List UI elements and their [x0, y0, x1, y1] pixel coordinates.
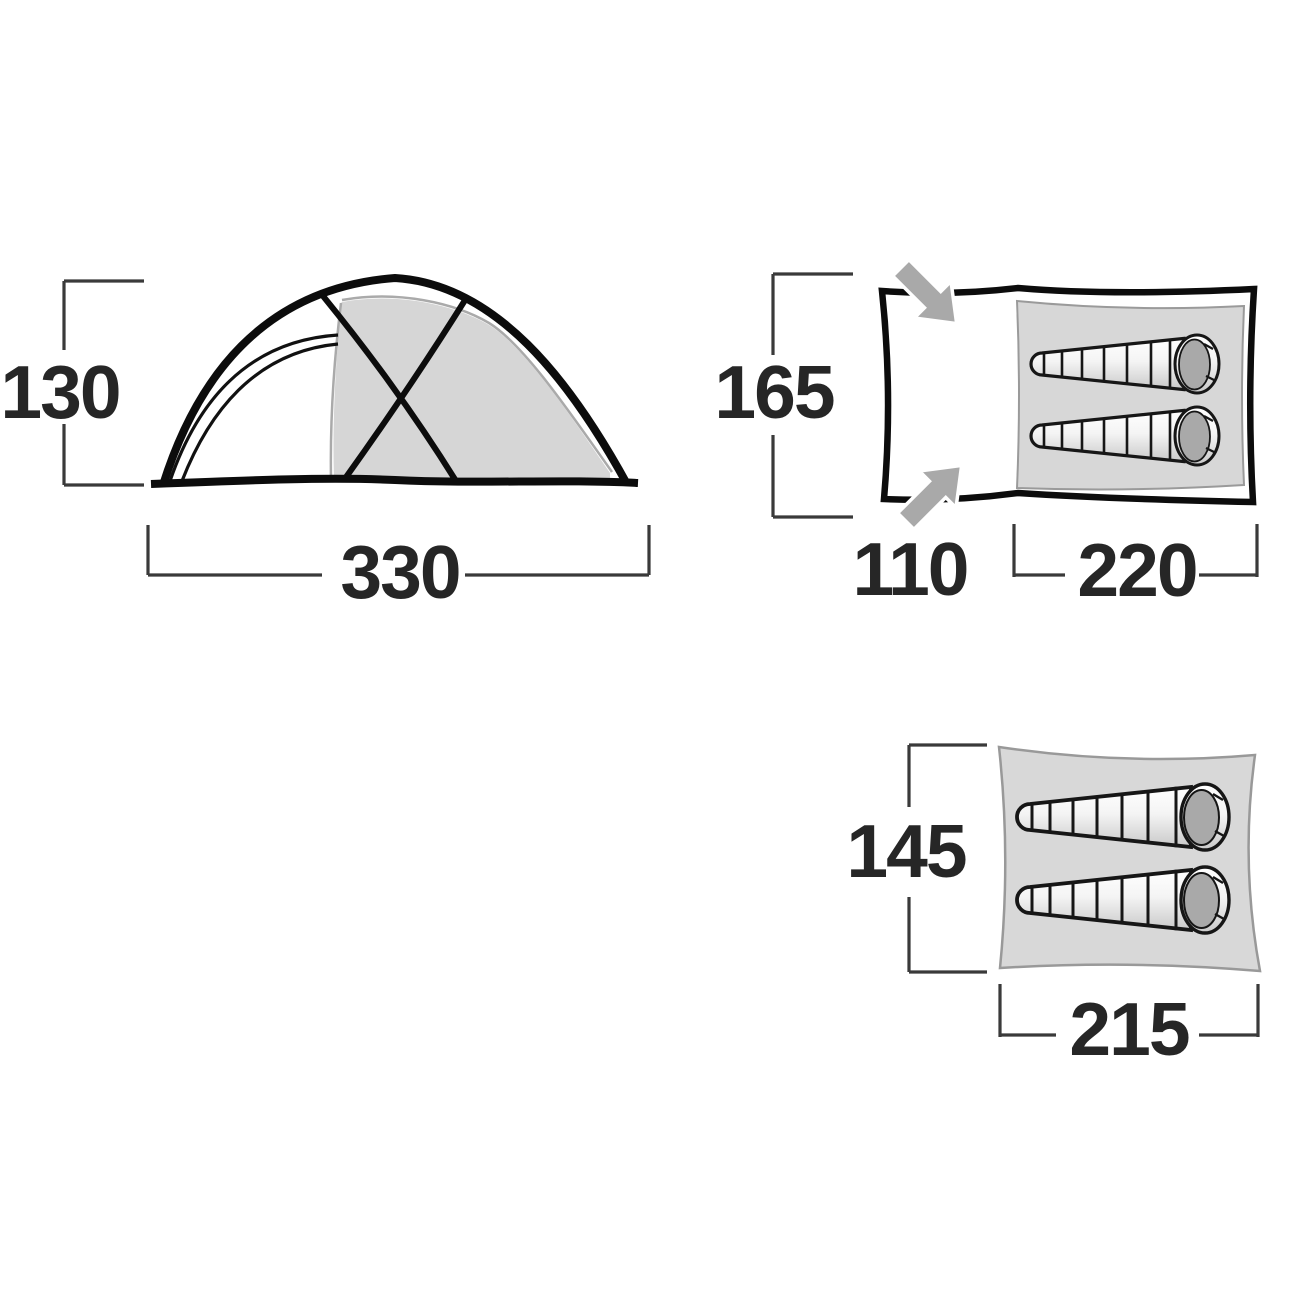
svg-text:215: 215 [1069, 987, 1188, 1071]
svg-text:220: 220 [1077, 528, 1196, 612]
svg-text:165: 165 [714, 350, 833, 434]
svg-text:130: 130 [0, 350, 119, 434]
svg-text:145: 145 [846, 809, 965, 893]
svg-text:110: 110 [853, 527, 968, 611]
svg-text:330: 330 [340, 530, 459, 614]
